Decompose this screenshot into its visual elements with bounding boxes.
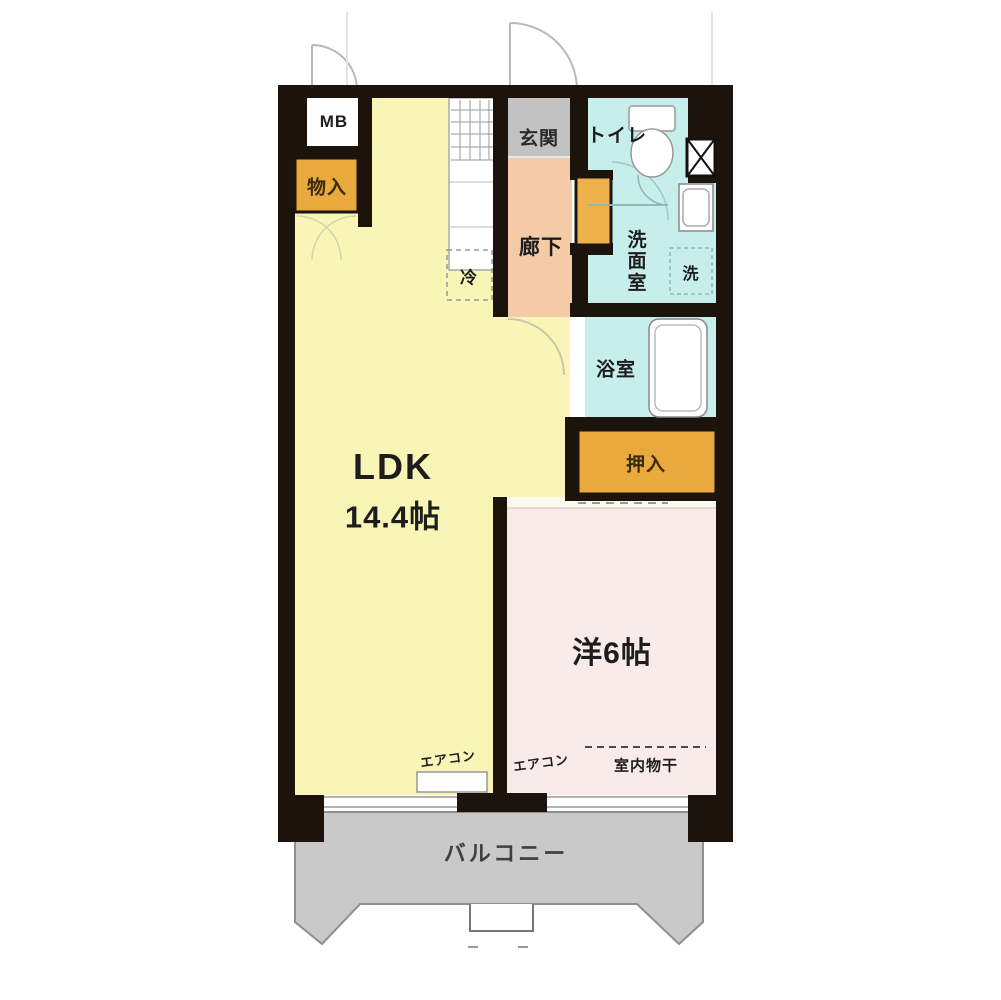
label-balcony: バルコニー [444,836,569,868]
wall-bath-top [570,303,716,317]
bathtub [649,319,707,417]
wall-storage-stub [358,95,372,227]
washroom-door [576,177,611,245]
label-corridor: 廊下 [519,231,563,261]
aircon-unit [417,772,487,792]
wall-pier-bottom-right [688,795,733,842]
label-western-room: 洋6帖 [572,628,652,672]
exterior-door-arcs [312,12,712,90]
label-indoor-drying: 室内物干 [614,755,678,776]
label-entrance: 玄関 [519,124,559,151]
label-mb: MB [320,112,348,132]
wall-right [716,85,733,820]
label-laundry: 洗 [682,260,699,284]
wall-central [493,95,508,317]
floor-plan-image: MB 物入 LDK 14.4帖 玄関 トイレ 廊下 洗面室 洗 浴室 押入 冷 … [0,0,1001,1000]
label-ldk-size: 14.4帖 [345,492,441,537]
wall-ldk-western [493,497,507,797]
balcony-hatch [470,904,533,931]
wall-entrance-toilet [570,95,588,177]
room-ldk-extension [493,317,570,497]
label-fridge: 冷 [460,264,478,289]
wall-pier-bottom-left [278,795,324,842]
label-closet: 押入 [626,450,666,477]
mb-door-arc [312,45,357,90]
label-washroom: 洗面室 [626,230,648,294]
label-ldk-name: LDK [353,446,433,488]
wall-closet-left [565,430,578,497]
entrance-door-arc [510,23,577,90]
wall-left [278,85,295,820]
label-bath: 浴室 [596,355,636,382]
label-toilet: トイレ [587,121,647,148]
label-storage: 物入 [307,173,347,200]
